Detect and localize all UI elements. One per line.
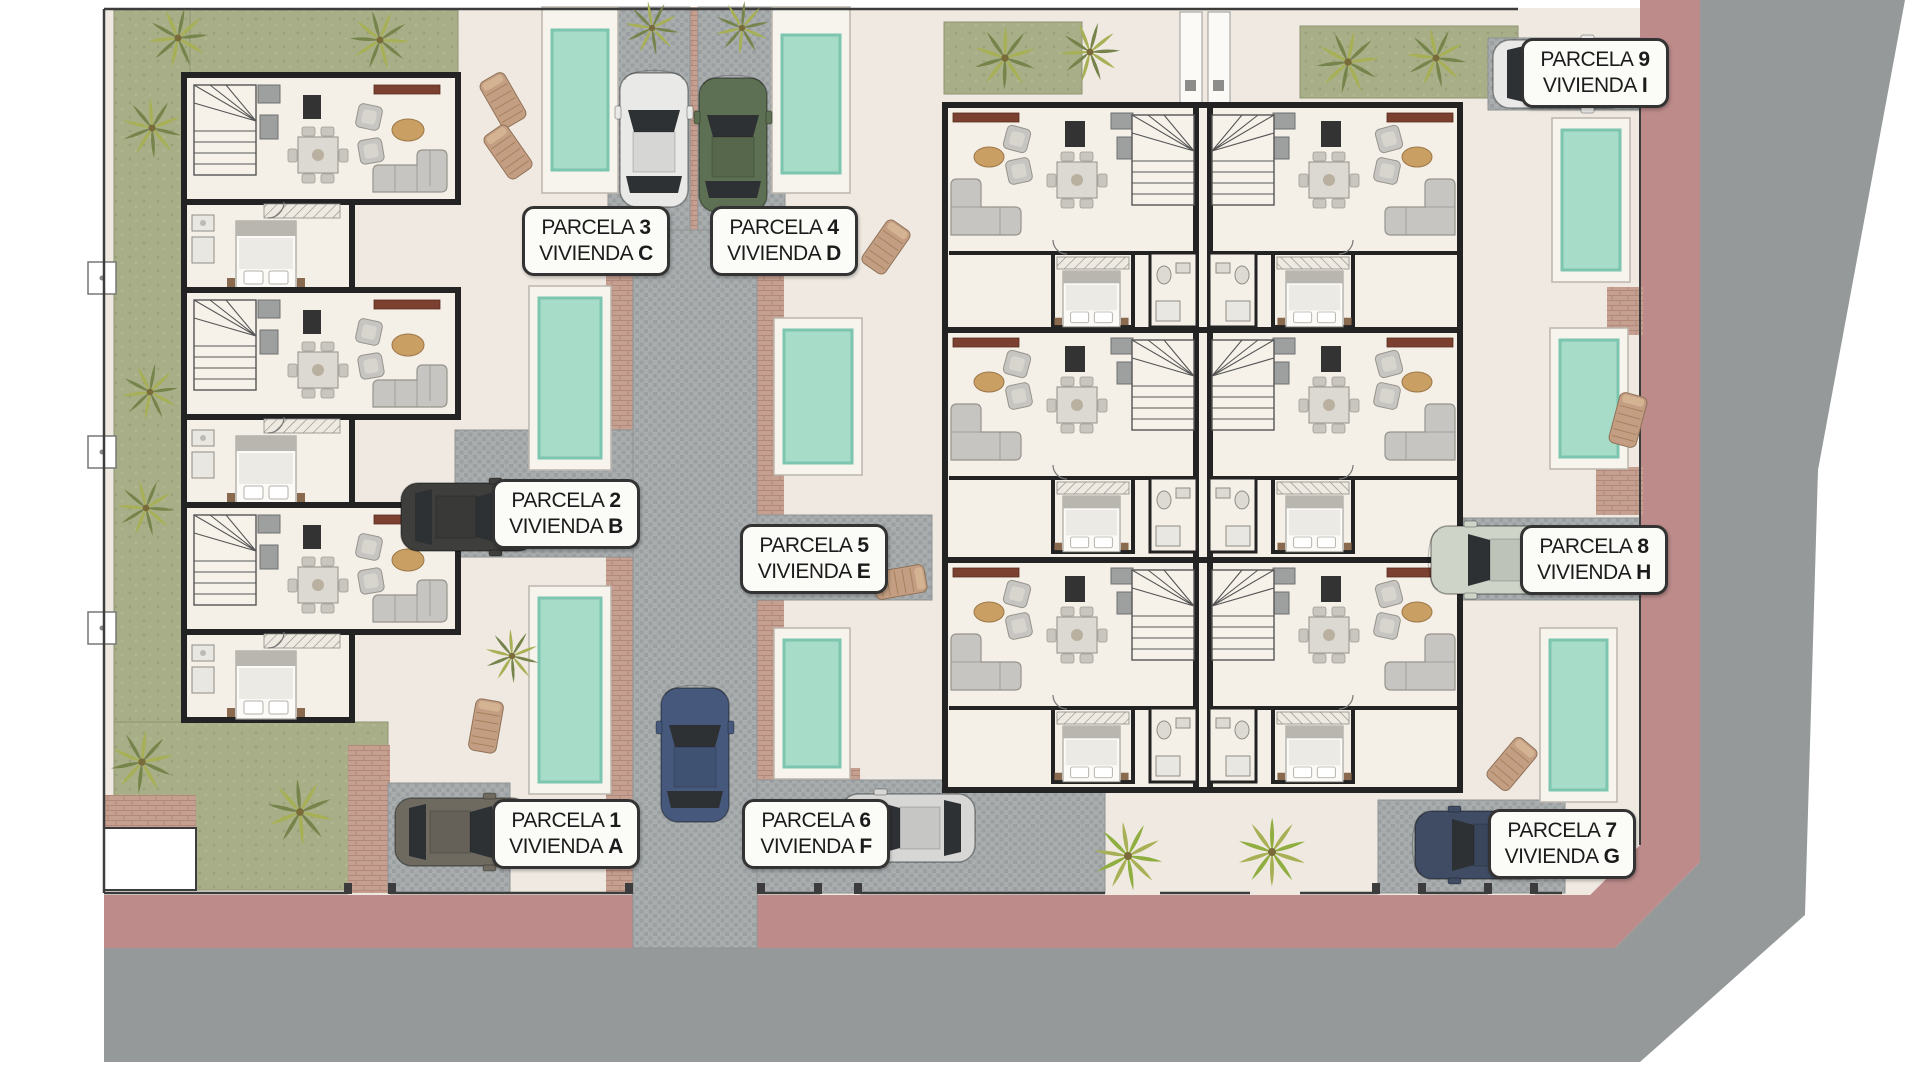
pool-parcela-8 <box>1550 328 1628 469</box>
label-parcela-6: PARCELA6 VIVIENDAF <box>742 799 890 869</box>
parcela-line: PARCELA8 <box>1525 534 1663 560</box>
parcela-line: PARCELA2 <box>497 488 635 514</box>
parcela-line: PARCELA4 <box>715 215 853 241</box>
parcela-line: PARCELA6 <box>747 808 885 834</box>
parking-bay-outline <box>104 828 196 890</box>
label-parcela-5: PARCELA5 VIVIENDAE <box>740 524 888 594</box>
vivienda-line: VIVIENDAE <box>745 559 883 585</box>
vivienda-line: VIVIENDAH <box>1525 560 1663 586</box>
pool-parcela-9 <box>1552 118 1630 282</box>
label-parcela-4: PARCELA4 VIVIENDAD <box>710 206 858 276</box>
pool-parcela-6 <box>774 628 850 779</box>
pool-parcela-5 <box>774 318 862 475</box>
label-parcela-7: PARCELA7 VIVIENDAG <box>1488 809 1636 879</box>
vivienda-line: VIVIENDAF <box>747 834 885 860</box>
vivienda-line: VIVIENDAI <box>1526 73 1664 99</box>
label-parcela-8: PARCELA8 VIVIENDAH <box>1520 525 1668 595</box>
pool-parcela-7 <box>1540 628 1617 802</box>
car-icon-blue-central-road <box>656 685 734 822</box>
car-icon-white-parcela-3 <box>615 70 693 207</box>
label-parcela-1: PARCELA1 VIVIENDAA <box>492 799 640 869</box>
vivienda-line: VIVIENDAD <box>715 241 853 267</box>
pool-parcela-1 <box>529 586 611 794</box>
parcela-line: PARCELA7 <box>1493 818 1631 844</box>
vivienda-line: VIVIENDAG <box>1493 844 1631 870</box>
right-building-block <box>945 105 1460 790</box>
label-parcela-2: PARCELA2 VIVIENDAB <box>492 479 640 549</box>
parcela-line: PARCELA1 <box>497 808 635 834</box>
label-parcela-9: PARCELA9 VIVIENDAI <box>1521 38 1669 108</box>
parcela-line: PARCELA9 <box>1526 47 1664 73</box>
pool-parcela-4 <box>772 7 850 193</box>
vivienda-line: VIVIENDAC <box>527 241 665 267</box>
car-icon-green-parcela-4 <box>694 75 772 212</box>
pool-parcela-2 <box>529 286 611 470</box>
label-parcela-3: PARCELA3 VIVIENDAC <box>522 206 670 276</box>
vivienda-line: VIVIENDAA <box>497 834 635 860</box>
pool-parcela-3 <box>542 7 618 193</box>
parcela-line: PARCELA5 <box>745 533 883 559</box>
central-road <box>633 230 757 948</box>
vivienda-line: VIVIENDAB <box>497 514 635 540</box>
parcela-line: PARCELA3 <box>527 215 665 241</box>
left-building-block <box>184 75 458 720</box>
site-plan-page: PARCELA1 VIVIENDAA PARCELA2 VIVIENDAB PA… <box>0 0 1920 1080</box>
